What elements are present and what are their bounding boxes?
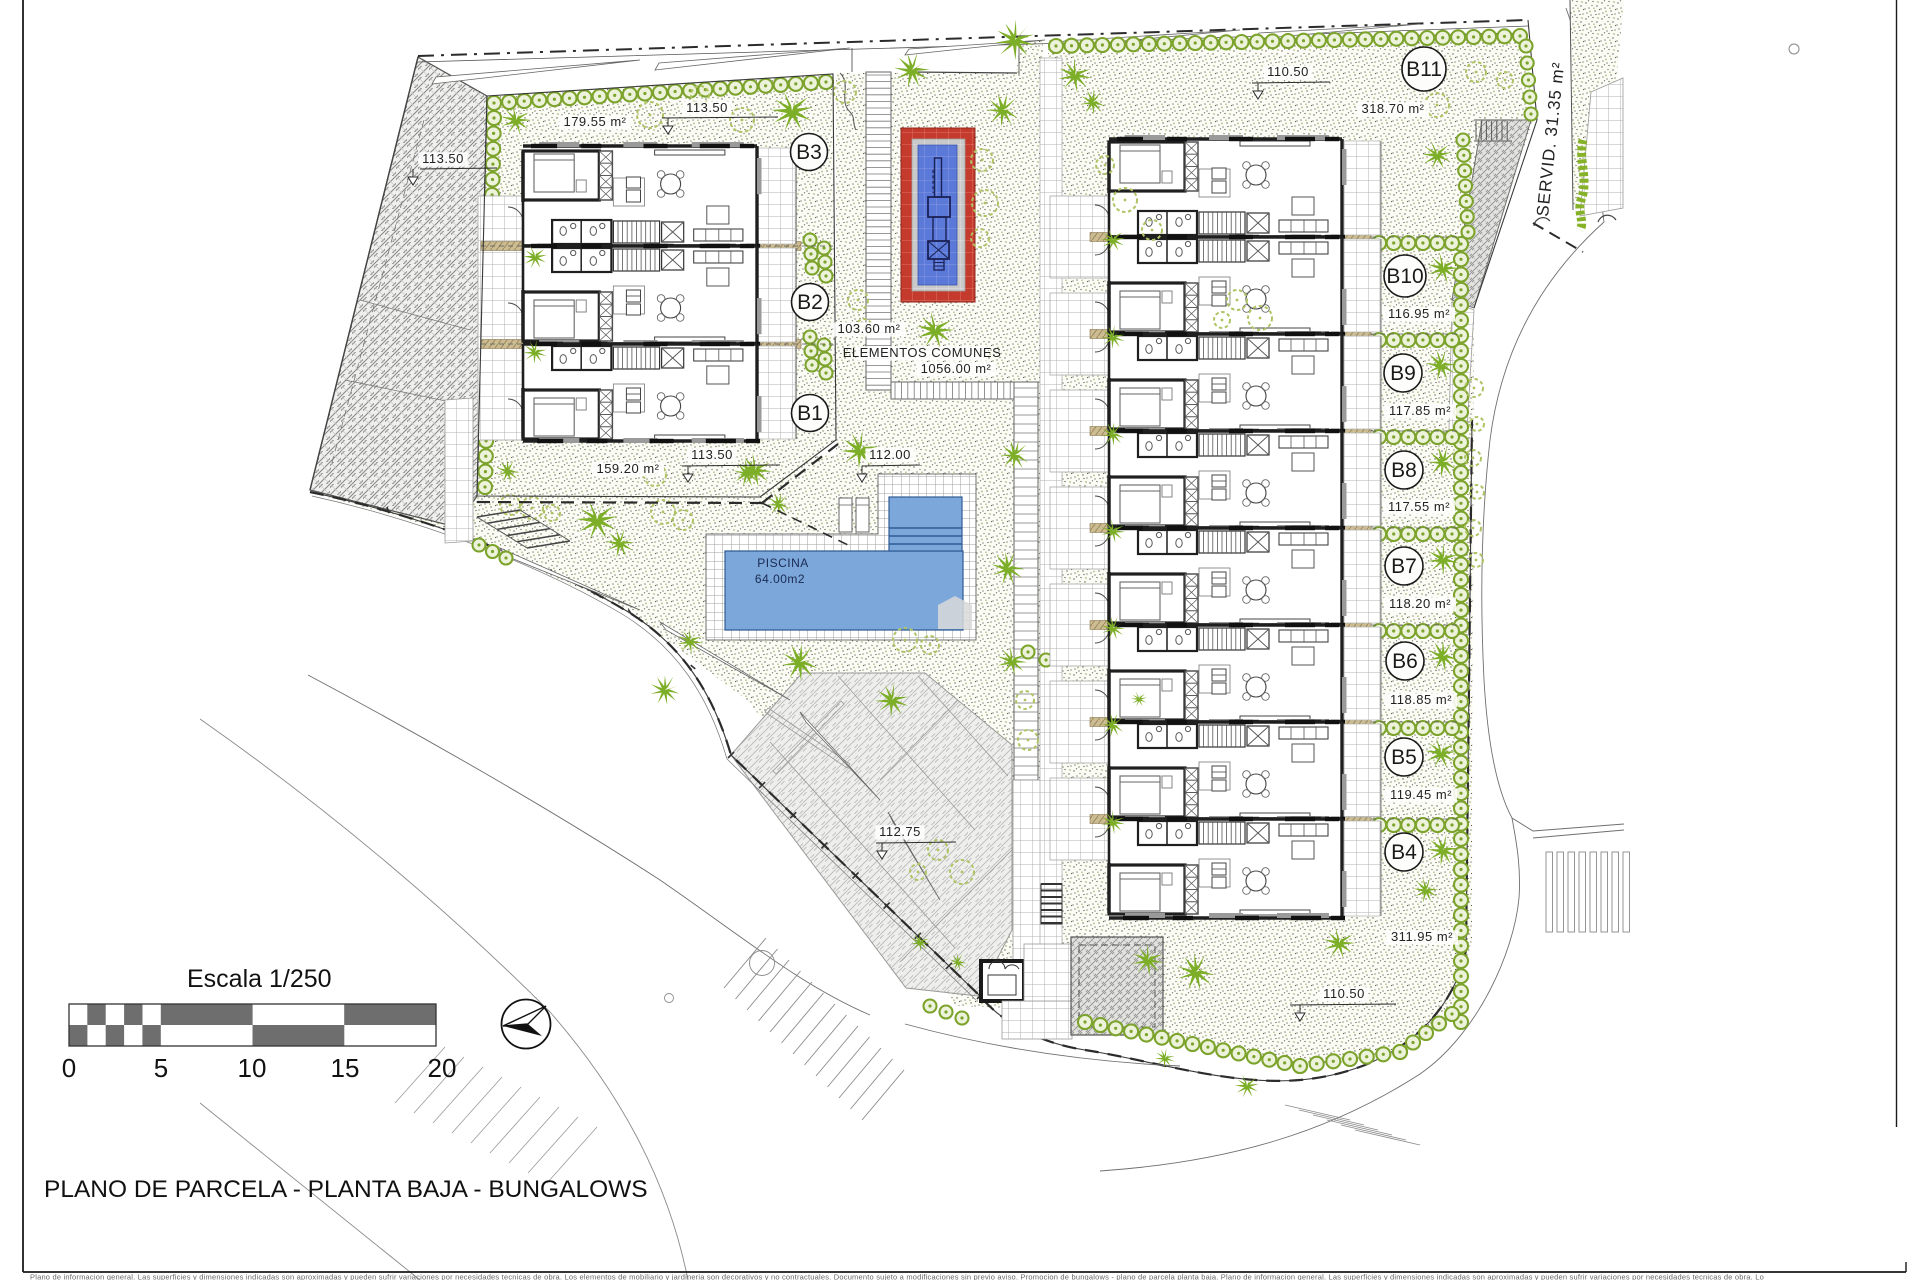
- svg-text:B7: B7: [1391, 555, 1417, 578]
- svg-text:117.55 m²: 117.55 m²: [1388, 499, 1450, 514]
- svg-text:159.20 m²: 159.20 m²: [596, 461, 659, 476]
- svg-text:103.60 m²: 103.60 m²: [837, 321, 900, 336]
- svg-text:117.85 m²: 117.85 m²: [1389, 403, 1451, 418]
- svg-text:B10: B10: [1386, 265, 1423, 288]
- svg-text:B11: B11: [1406, 58, 1442, 81]
- svg-text:116.95 m²: 116.95 m²: [1388, 306, 1450, 321]
- svg-text:10: 10: [238, 1053, 267, 1083]
- svg-text:311.95 m²: 311.95 m²: [1391, 929, 1453, 944]
- svg-text:64.00m2: 64.00m2: [755, 572, 805, 586]
- svg-text:113.50: 113.50: [686, 100, 728, 115]
- svg-text:118.85 m²: 118.85 m²: [1390, 692, 1452, 707]
- svg-text:B2: B2: [797, 291, 823, 314]
- svg-text:ELEMENTOS COMUNES: ELEMENTOS COMUNES: [843, 345, 1002, 360]
- svg-text:118.20 m²: 118.20 m²: [1389, 596, 1451, 611]
- svg-text:5: 5: [154, 1053, 168, 1083]
- svg-text:1056.00 m²: 1056.00 m²: [921, 361, 992, 376]
- svg-text:113.50: 113.50: [422, 151, 464, 166]
- svg-text:113.50: 113.50: [691, 447, 733, 462]
- svg-text:B8: B8: [1391, 459, 1417, 482]
- svg-text:B3: B3: [796, 141, 822, 164]
- svg-text:B5: B5: [1391, 746, 1417, 769]
- svg-text:B9: B9: [1390, 362, 1416, 385]
- svg-text:B4: B4: [1391, 841, 1417, 864]
- svg-text:20: 20: [428, 1053, 457, 1083]
- svg-text:318.70 m²: 318.70 m²: [1361, 101, 1424, 116]
- svg-text:119.45 m²: 119.45 m²: [1390, 787, 1452, 802]
- svg-text:Plano de informacion general.: Plano de informacion general. Las superf…: [30, 1273, 1764, 1281]
- svg-text:112.00: 112.00: [869, 447, 911, 462]
- svg-text:B1: B1: [797, 402, 823, 425]
- svg-text:15: 15: [331, 1053, 360, 1083]
- svg-text:PLANO DE PARCELA - PLANTA BAJA: PLANO DE PARCELA - PLANTA BAJA - BUNGALO…: [44, 1176, 648, 1203]
- svg-text:112.75: 112.75: [879, 824, 921, 839]
- svg-text:110.50: 110.50: [1323, 986, 1365, 1001]
- svg-text:B6: B6: [1392, 650, 1418, 673]
- svg-text:110.50: 110.50: [1267, 64, 1309, 79]
- svg-text:0: 0: [62, 1053, 76, 1083]
- svg-text:179.55 m²: 179.55 m²: [563, 114, 626, 129]
- svg-text:PISCINA: PISCINA: [757, 556, 809, 570]
- svg-text:Escala 1/250: Escala 1/250: [187, 965, 332, 993]
